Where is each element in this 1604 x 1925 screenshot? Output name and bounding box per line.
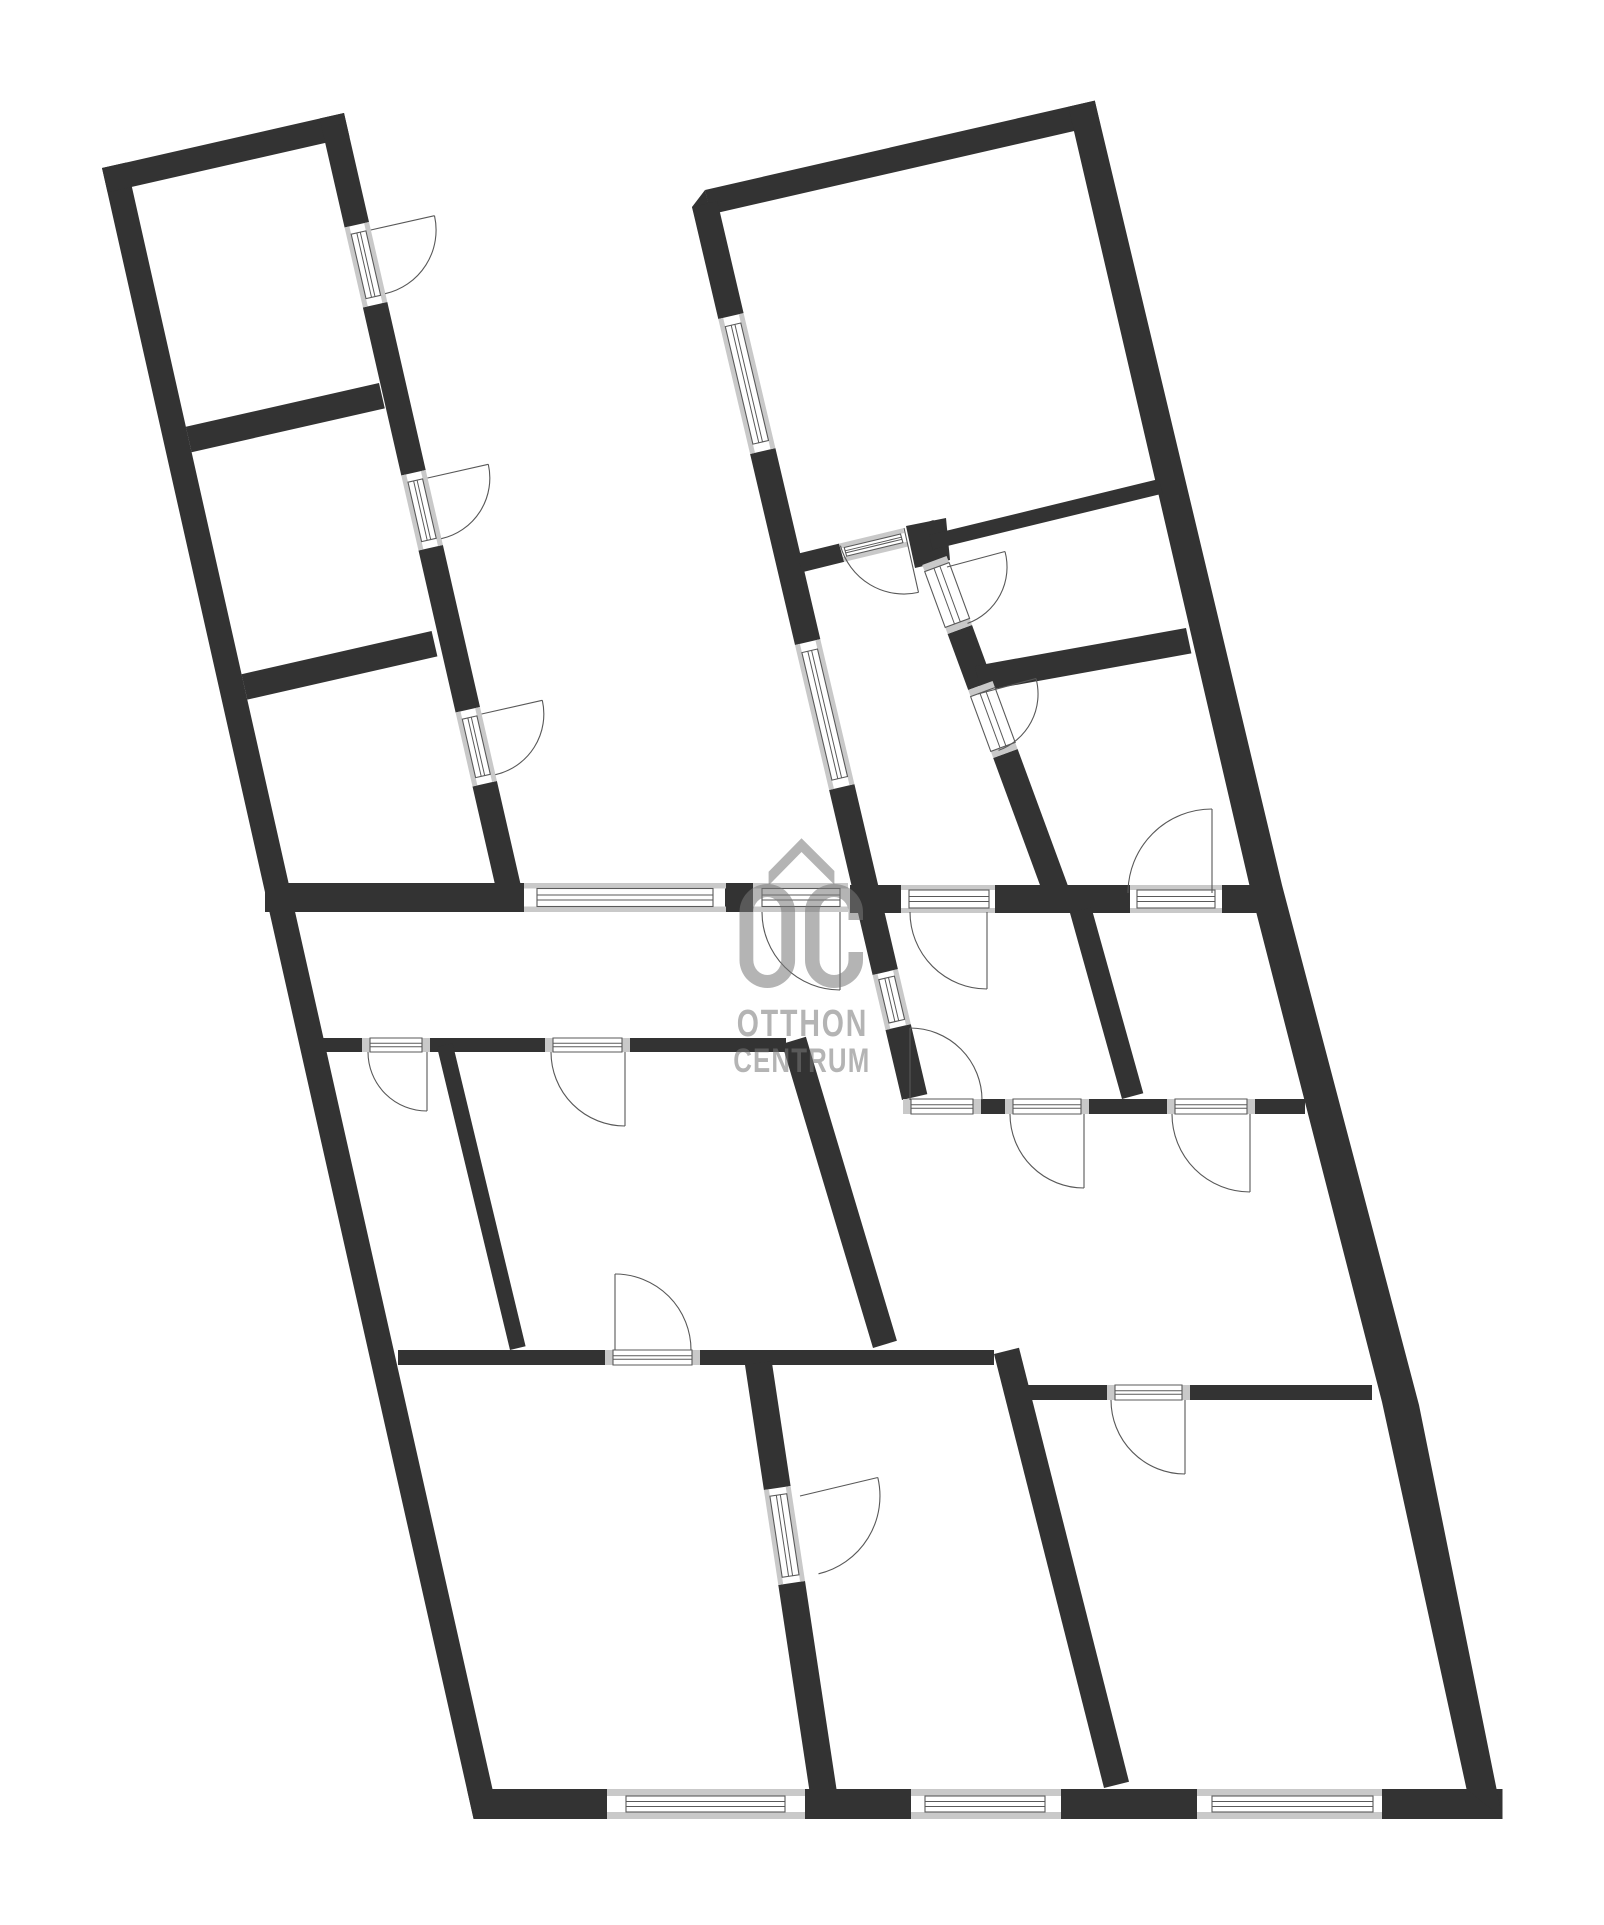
svg-text:OTTHON: OTTHON [737,1003,869,1045]
svg-text:CENTRUM: CENTRUM [733,1043,870,1080]
